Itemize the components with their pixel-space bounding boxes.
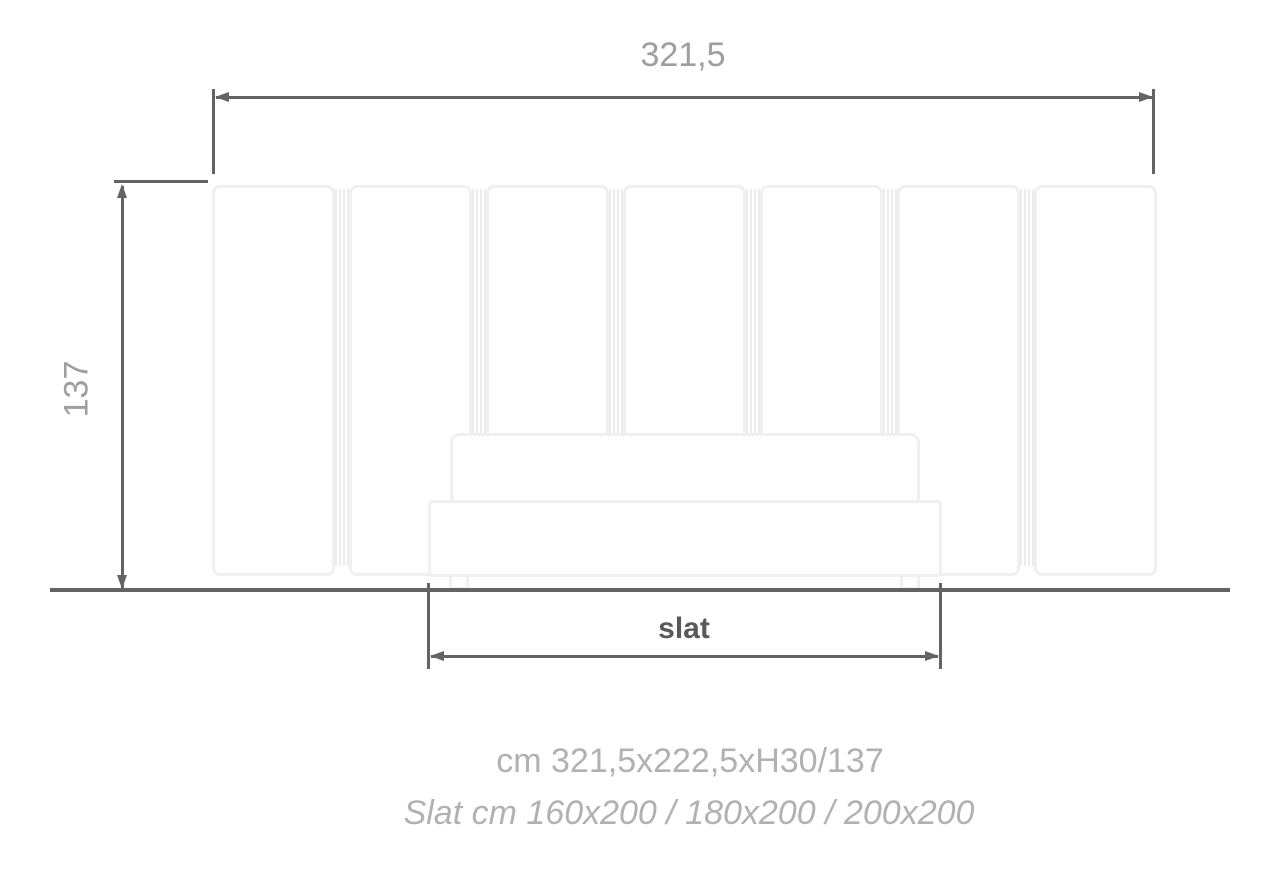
overall-width-dimension-label: 321,5: [640, 36, 725, 75]
arrow-right-icon: [925, 651, 939, 661]
mattress-outline: [450, 433, 920, 506]
slat-sizes-caption: Slat cm 160x200 / 180x200 / 200x200: [404, 794, 975, 833]
overall-width-dimension-line: [216, 96, 1153, 99]
arrow-left-icon: [430, 651, 444, 661]
arrow-up-icon: [117, 184, 127, 198]
arrow-down-icon: [117, 575, 127, 589]
overall-width-extension-line-right: [1152, 89, 1155, 174]
arrow-right-icon: [1139, 92, 1153, 102]
headboard-panel: [212, 185, 335, 576]
panel-connector: [1020, 189, 1034, 566]
arrow-left-icon: [215, 92, 229, 102]
ground-line: [50, 588, 1230, 592]
overall-width-extension-line-left: [212, 89, 215, 174]
bed-technical-drawing: 321,5 137 slat cm 321,5x222,5xH30/137 Sl…: [0, 0, 1261, 877]
bed-base-outline: [428, 500, 942, 577]
overall-height-dimension-line: [121, 186, 124, 589]
overall-height-extension-line-top: [114, 180, 208, 183]
slat-dimension-label: slat: [658, 612, 710, 646]
overall-height-dimension-label: 137: [58, 361, 97, 418]
panel-connector: [335, 189, 349, 566]
slat-dimension-line: [431, 655, 938, 658]
overall-size-caption: cm 321,5x222,5xH30/137: [496, 742, 883, 781]
slat-extension-line-right: [939, 583, 942, 669]
headboard-panel: [1034, 185, 1157, 576]
